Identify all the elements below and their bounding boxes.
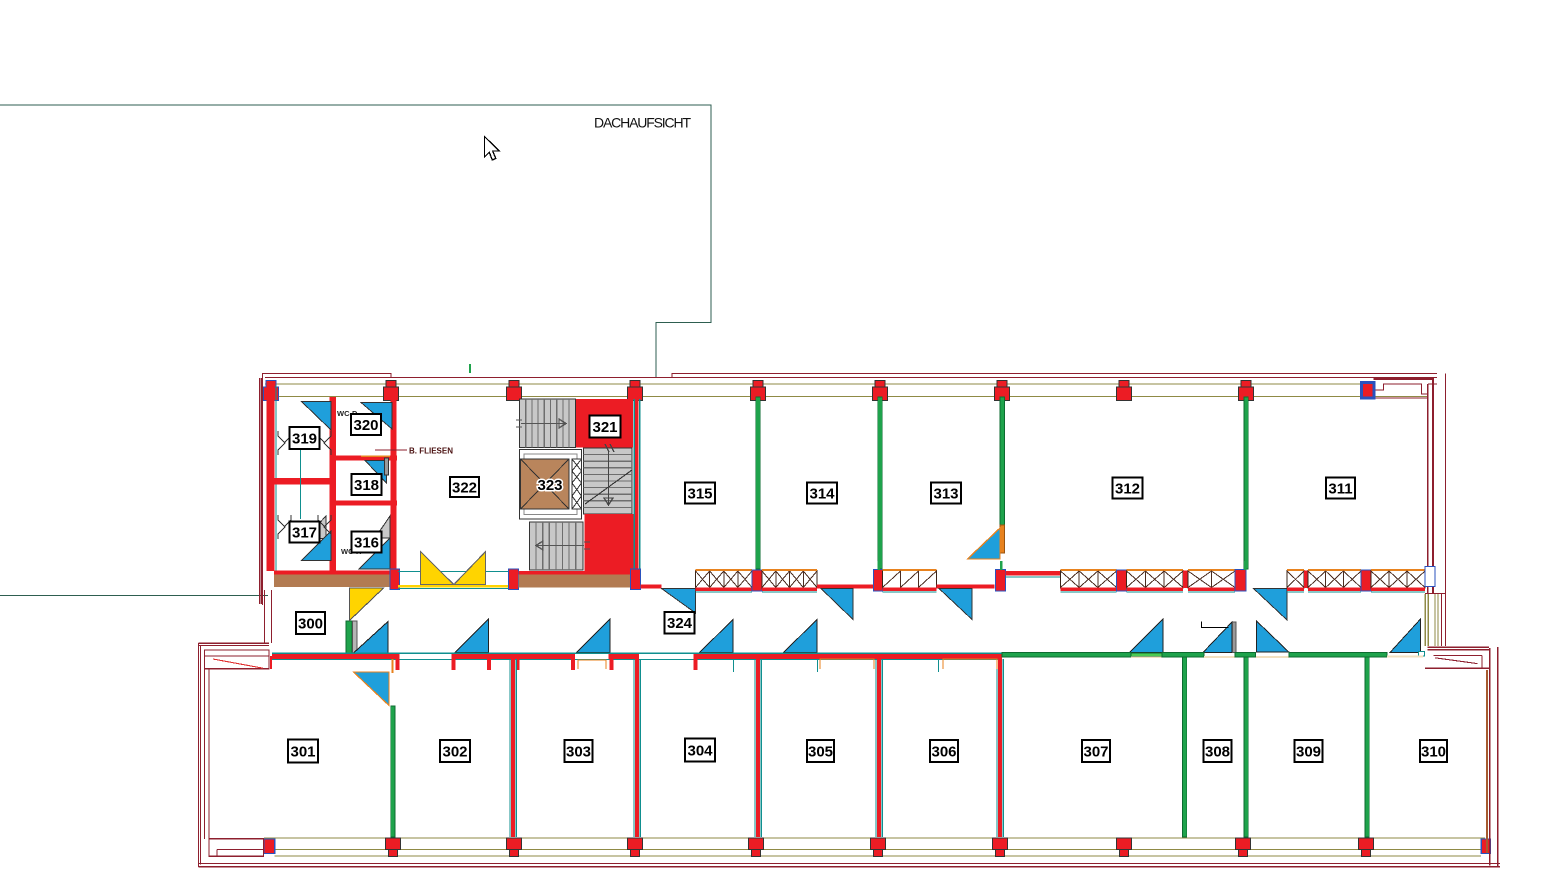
svg-text:300: 300: [298, 615, 323, 632]
svg-text:310: 310: [1421, 743, 1446, 760]
svg-text:318: 318: [354, 477, 379, 494]
svg-text:301: 301: [290, 743, 315, 760]
svg-text:305: 305: [808, 743, 833, 760]
svg-text:315: 315: [687, 485, 712, 502]
svg-text:309: 309: [1296, 743, 1321, 760]
svg-text:324: 324: [667, 615, 693, 632]
svg-text:313: 313: [933, 485, 958, 502]
svg-text:308: 308: [1205, 743, 1230, 760]
svg-text:DACHAUFSICHT: DACHAUFSICHT: [594, 115, 691, 131]
svg-text:311: 311: [1328, 480, 1352, 497]
svg-text:303: 303: [566, 743, 591, 760]
svg-text:B. FLIESEN: B. FLIESEN: [409, 447, 453, 456]
svg-text:321: 321: [592, 419, 617, 436]
svg-text:323: 323: [537, 477, 562, 494]
svg-text:306: 306: [931, 743, 956, 760]
svg-text:320: 320: [353, 417, 378, 434]
svg-text:314: 314: [809, 485, 835, 502]
svg-text:312: 312: [1115, 480, 1140, 497]
svg-text:319: 319: [292, 430, 317, 447]
svg-text:304: 304: [687, 742, 713, 759]
svg-text:307: 307: [1083, 743, 1108, 760]
svg-text:322: 322: [452, 479, 477, 496]
svg-text:316: 316: [354, 534, 379, 551]
svg-text:317: 317: [292, 524, 317, 541]
svg-text:302: 302: [442, 743, 467, 760]
